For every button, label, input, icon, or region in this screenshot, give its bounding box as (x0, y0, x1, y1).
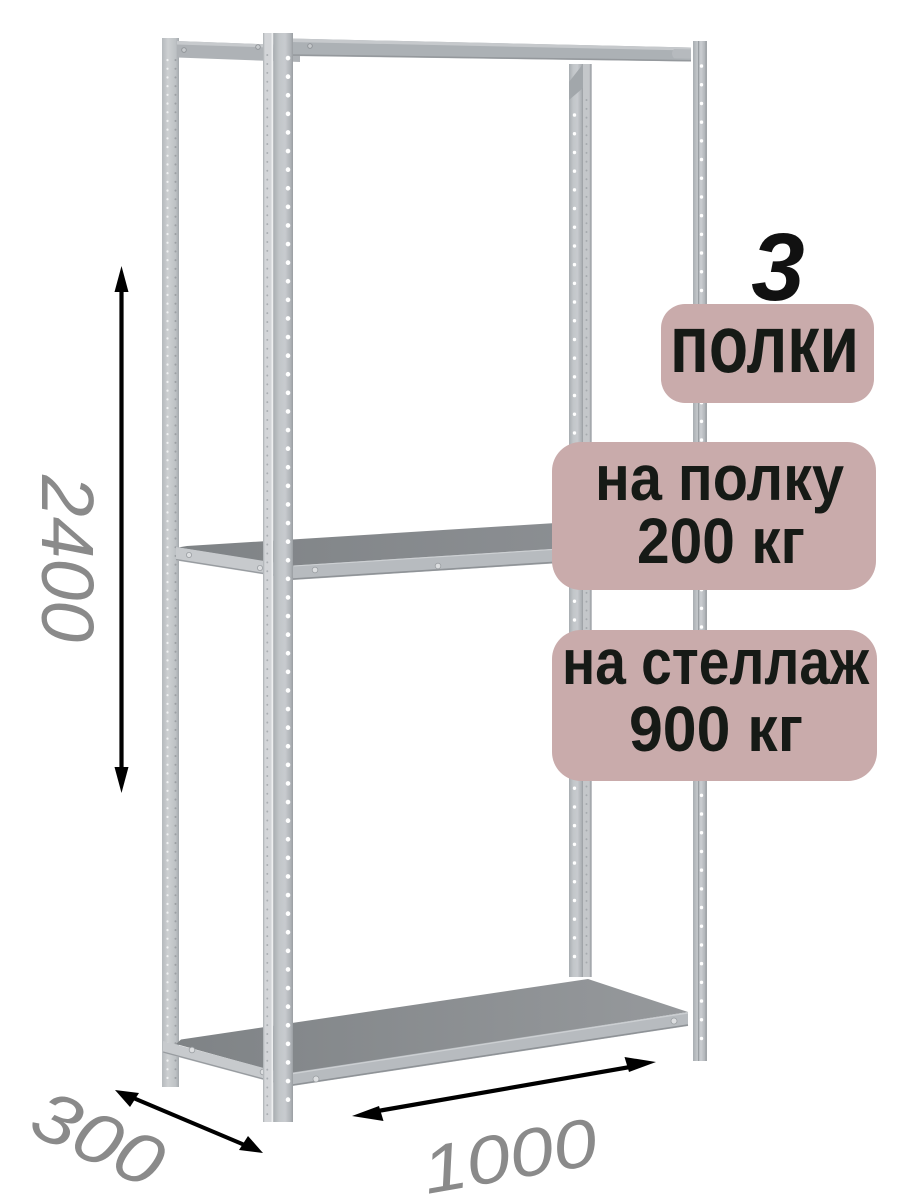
svg-text:на стеллаж: на стеллаж (562, 626, 870, 698)
svg-text:900 кг: 900 кг (629, 693, 803, 765)
svg-text:300: 300 (19, 1075, 176, 1200)
svg-text:200 кг: 200 кг (637, 505, 805, 577)
svg-text:полки: полки (670, 299, 859, 390)
svg-text:2400: 2400 (26, 474, 109, 642)
svg-text:1000: 1000 (417, 1104, 603, 1200)
svg-text:на полку: на полку (595, 442, 844, 514)
